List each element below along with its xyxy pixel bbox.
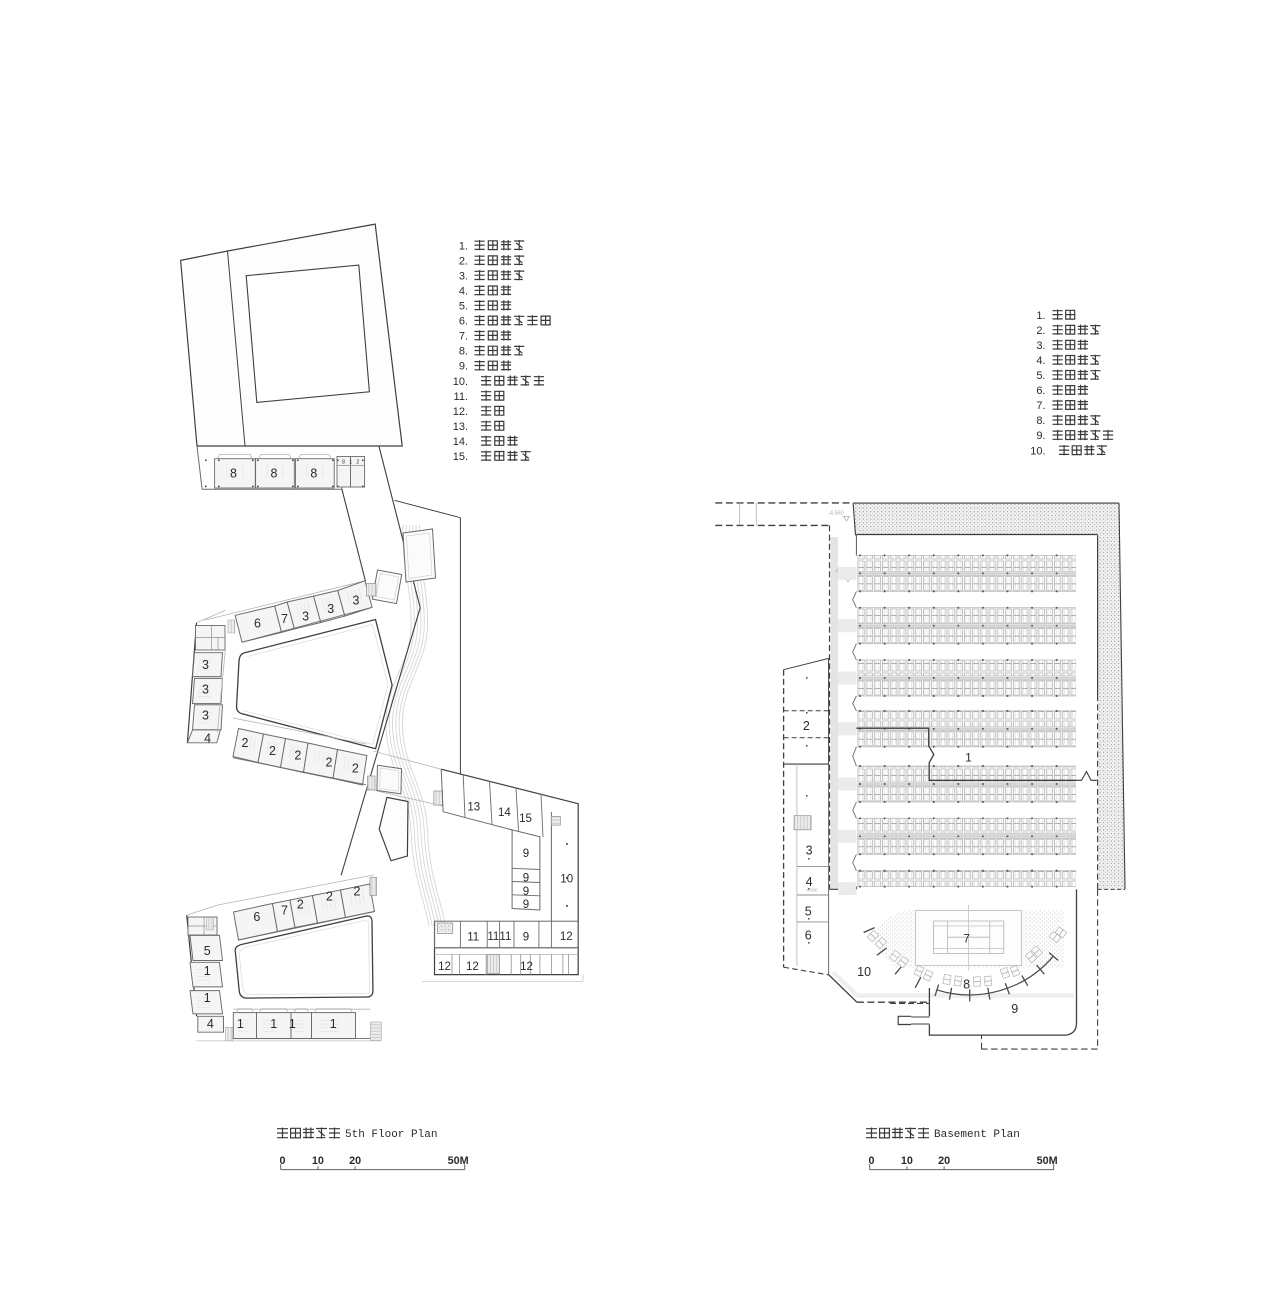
svg-text:8: 8	[230, 467, 237, 481]
svg-text:7: 7	[281, 612, 288, 626]
svg-text:3: 3	[327, 602, 334, 616]
svg-text:9.: 9.	[1036, 430, 1045, 442]
svg-text:9.: 9.	[459, 361, 468, 373]
svg-text:11.: 11.	[454, 391, 468, 403]
svg-text:4.: 4.	[459, 286, 468, 298]
svg-text:10: 10	[901, 1155, 913, 1167]
svg-text:11: 11	[487, 931, 499, 943]
svg-text:50M: 50M	[448, 1155, 469, 1167]
svg-text:6: 6	[805, 929, 812, 943]
svg-text:15.: 15.	[453, 451, 468, 463]
svg-text:8.: 8.	[1036, 415, 1045, 427]
svg-text:10: 10	[312, 1155, 324, 1167]
svg-text:3: 3	[202, 708, 209, 722]
svg-text:3: 3	[302, 610, 309, 624]
svg-text:1: 1	[237, 1017, 244, 1031]
svg-text:9: 9	[523, 886, 529, 898]
svg-text:13: 13	[467, 801, 480, 813]
svg-text:14.: 14.	[453, 436, 468, 448]
svg-text:20: 20	[349, 1155, 361, 1167]
svg-text:2: 2	[326, 889, 333, 903]
svg-text:5.: 5.	[459, 301, 468, 313]
svg-text:3: 3	[806, 844, 813, 858]
svg-text:9: 9	[523, 872, 529, 884]
svg-text:20: 20	[938, 1155, 950, 1167]
svg-text:7.: 7.	[1036, 400, 1045, 412]
svg-text:6.: 6.	[459, 316, 468, 328]
svg-text:3.: 3.	[1036, 340, 1045, 352]
svg-text:12: 12	[438, 961, 451, 973]
svg-text:0: 0	[280, 1155, 286, 1167]
svg-text:9: 9	[523, 931, 529, 943]
svg-text:2: 2	[269, 744, 276, 758]
svg-text:5.: 5.	[1036, 370, 1045, 382]
svg-text:2: 2	[294, 748, 301, 762]
svg-text:15: 15	[519, 813, 532, 825]
svg-text:50M: 50M	[1037, 1155, 1058, 1167]
svg-text:12: 12	[466, 961, 479, 973]
svg-text:2: 2	[356, 460, 359, 466]
svg-text:13.: 13.	[453, 421, 468, 433]
svg-text:3: 3	[202, 658, 209, 672]
svg-text:9: 9	[1011, 1002, 1018, 1016]
svg-text:14: 14	[498, 807, 511, 819]
svg-text:2: 2	[352, 761, 359, 775]
svg-text:12.: 12.	[453, 406, 468, 418]
svg-text:2: 2	[354, 885, 361, 899]
svg-text:4: 4	[207, 1017, 214, 1031]
svg-text:8: 8	[963, 978, 970, 992]
svg-text:10.: 10.	[1030, 445, 1045, 457]
svg-text:1.: 1.	[459, 240, 468, 252]
svg-text:7.: 7.	[459, 331, 468, 343]
svg-text:11: 11	[499, 931, 511, 943]
svg-text:1: 1	[204, 991, 211, 1005]
svg-text:2.: 2.	[1036, 325, 1045, 337]
svg-text:10.: 10.	[453, 376, 468, 388]
svg-text:3: 3	[353, 594, 360, 608]
svg-text:2: 2	[803, 719, 810, 733]
svg-text:8.: 8.	[459, 346, 468, 358]
svg-text:Basement Plan: Basement Plan	[934, 1129, 1020, 1141]
svg-text:3: 3	[202, 683, 209, 697]
svg-text:8: 8	[271, 467, 278, 481]
svg-text:9: 9	[523, 848, 529, 860]
svg-text:9: 9	[523, 899, 529, 911]
svg-text:10: 10	[857, 965, 871, 979]
svg-text:1: 1	[204, 964, 211, 978]
svg-text:-4.550: -4.550	[828, 511, 844, 517]
svg-text:5: 5	[805, 905, 812, 919]
svg-text:1: 1	[330, 1017, 337, 1031]
svg-text:4: 4	[204, 732, 211, 746]
svg-text:1.: 1.	[1036, 310, 1045, 322]
svg-text:5th Floor Plan: 5th Floor Plan	[345, 1129, 437, 1141]
svg-text:8: 8	[342, 460, 345, 466]
svg-text:7: 7	[963, 932, 970, 946]
svg-text:5: 5	[204, 944, 211, 958]
svg-text:12: 12	[560, 931, 573, 943]
svg-text:10: 10	[560, 873, 573, 885]
svg-text:0: 0	[869, 1155, 875, 1167]
svg-text:1: 1	[289, 1017, 296, 1031]
svg-text:6: 6	[253, 910, 260, 924]
svg-text:7: 7	[281, 904, 288, 918]
svg-text:2: 2	[242, 736, 249, 750]
svg-text:2: 2	[297, 897, 304, 911]
svg-text:11: 11	[467, 931, 479, 943]
svg-text:4.: 4.	[1036, 355, 1045, 367]
svg-text:1: 1	[349, 460, 352, 466]
svg-text:1: 1	[270, 1017, 277, 1031]
svg-text:1: 1	[965, 751, 972, 765]
svg-text:6: 6	[254, 617, 261, 631]
svg-text:12: 12	[520, 961, 533, 973]
svg-text:8: 8	[310, 467, 317, 481]
svg-text:6.: 6.	[1036, 385, 1045, 397]
svg-text:3.: 3.	[459, 270, 468, 282]
svg-text:2: 2	[326, 756, 333, 770]
svg-text:2.: 2.	[459, 255, 468, 267]
